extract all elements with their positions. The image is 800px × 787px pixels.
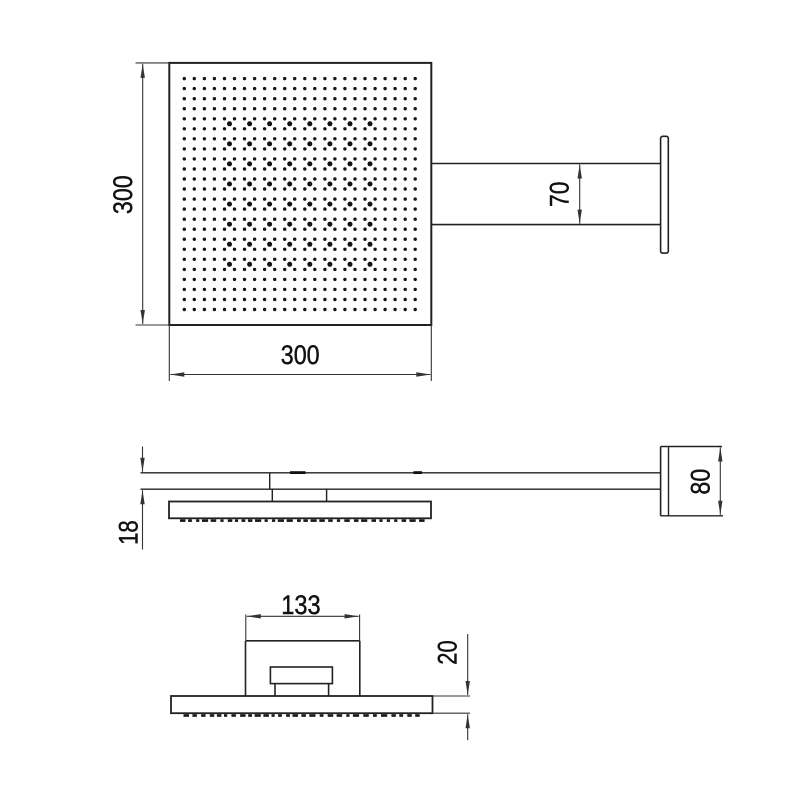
svg-text:300: 300 (281, 340, 320, 370)
svg-text:70: 70 (545, 182, 575, 208)
svg-text:18: 18 (114, 520, 144, 545)
svg-text:80: 80 (686, 469, 716, 495)
svg-text:300: 300 (108, 175, 138, 214)
svg-text:20: 20 (432, 640, 462, 664)
svg-text:133: 133 (281, 590, 320, 620)
